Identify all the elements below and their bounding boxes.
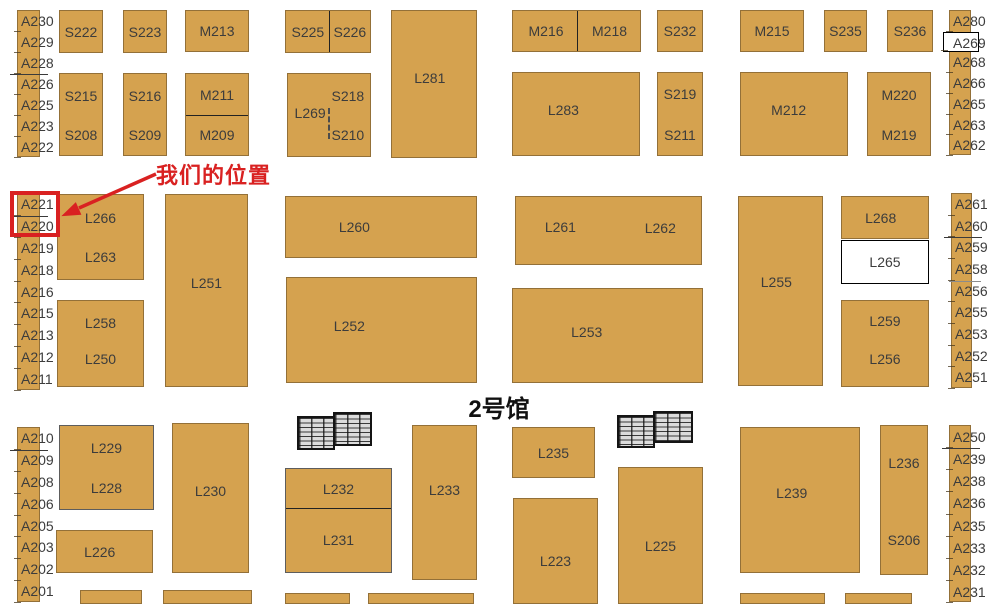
booth-label-row: A250 bbox=[949, 426, 989, 448]
booth-L233: L233 bbox=[412, 425, 477, 580]
booth-label: A205 bbox=[17, 518, 54, 534]
booth-label: L250 bbox=[85, 351, 116, 367]
booth-label-row: A253 bbox=[951, 324, 989, 346]
booth-label-row: A202 bbox=[17, 559, 61, 581]
booth-label: A236 bbox=[949, 495, 986, 511]
booth-M216-M218: M216M218 bbox=[512, 10, 641, 52]
booth-label: A251 bbox=[951, 369, 988, 385]
booth-label: A250 bbox=[949, 429, 986, 445]
booth-label-row: A218 bbox=[17, 260, 61, 282]
booth-L266-L263: L266L263 bbox=[57, 194, 144, 280]
booth-label-row: A256 bbox=[951, 281, 989, 303]
booth-label: L260 bbox=[339, 219, 370, 235]
booth-label: A211 bbox=[17, 371, 53, 387]
booth-L281: L281 bbox=[391, 10, 477, 158]
hatch-segment bbox=[617, 415, 655, 448]
booth-label-row: A208 bbox=[17, 472, 61, 494]
booth-label: L252 bbox=[334, 318, 365, 334]
booth-L253: L253 bbox=[512, 288, 703, 383]
booth-M212: M212 bbox=[740, 72, 848, 156]
booth-label: M219 bbox=[881, 127, 916, 143]
booth-L226: L226 bbox=[56, 530, 153, 573]
booth-label: S216 bbox=[129, 88, 162, 104]
booth-label: A268 bbox=[949, 54, 986, 70]
booth-label: A230 bbox=[17, 13, 54, 29]
booth-label: S211 bbox=[664, 127, 696, 143]
booth-label: A235 bbox=[949, 518, 986, 534]
our-location-label: 我们的位置 bbox=[156, 158, 271, 190]
booth-label: L232 bbox=[323, 481, 354, 497]
booth-label: M212 bbox=[771, 102, 806, 118]
exhibition-floorplan: A230A229A228A226A225A223A222A221A220A219… bbox=[0, 0, 989, 604]
booth-label: S210 bbox=[332, 127, 365, 143]
booth-label: S206 bbox=[888, 532, 921, 548]
booth-label: L262 bbox=[645, 220, 676, 236]
booth-label: S215 bbox=[65, 88, 98, 104]
booth-label: L269 bbox=[295, 105, 326, 121]
booth-label: A213 bbox=[17, 327, 54, 343]
booth-label: L235 bbox=[538, 445, 569, 461]
booth-label: A262 bbox=[949, 137, 986, 153]
booth-label: S232 bbox=[664, 23, 697, 39]
booth-label: S219 bbox=[664, 86, 697, 102]
booth-label: A261 bbox=[951, 196, 988, 212]
booth-label: S226 bbox=[333, 24, 366, 40]
booth-M213: M213 bbox=[185, 10, 249, 52]
booth-label-row: A206 bbox=[17, 494, 61, 516]
booth-stub bbox=[368, 593, 474, 604]
booth-divider bbox=[286, 508, 391, 509]
booth-label: L251 bbox=[191, 275, 222, 291]
booth-divider bbox=[186, 115, 248, 116]
booth-L265: L265 bbox=[841, 240, 929, 284]
booth-label-row: A232 bbox=[949, 559, 989, 581]
booth-label: A203 bbox=[17, 539, 54, 555]
booth-label-row: A215 bbox=[17, 303, 61, 325]
booth-label: M220 bbox=[881, 87, 916, 103]
booth-label: L236 bbox=[888, 455, 919, 471]
booth-L258-L250: L258L250 bbox=[57, 300, 144, 387]
booth-label-row: A212 bbox=[17, 347, 61, 369]
booth-label-row: A216 bbox=[17, 282, 61, 304]
booth-label-row: A255 bbox=[951, 302, 989, 324]
booth-L283: L283 bbox=[512, 72, 640, 156]
booth-label: A226 bbox=[17, 76, 54, 92]
booth-label-row: A233 bbox=[949, 537, 989, 559]
booth-label: S236 bbox=[894, 23, 927, 39]
booth-label: L263 bbox=[85, 249, 116, 265]
booth-label-row: A225 bbox=[17, 95, 61, 116]
booth-label: A259 bbox=[951, 239, 988, 255]
booth-label: A266 bbox=[949, 75, 986, 91]
booth-label-row: A236 bbox=[949, 492, 989, 514]
booth-S216-S209: S216S209 bbox=[123, 73, 167, 156]
hatch-segment bbox=[333, 412, 372, 446]
booth-column-right-bottom: A250A239A238A236A235A233A232A231 bbox=[949, 425, 971, 602]
booth-label: A225 bbox=[17, 97, 54, 113]
booth-label: A263 bbox=[949, 117, 986, 133]
booth-S219-S211: S219S211 bbox=[657, 72, 703, 156]
booth-column-right-top: A280A269A268A266A265A263A262 bbox=[949, 10, 971, 155]
booth-column-left-bottom: A210A209A208A206A205A203A202A201 bbox=[17, 427, 40, 602]
booth-label-row: A219 bbox=[17, 238, 61, 260]
booth-label-row: A231 bbox=[949, 581, 989, 603]
booth-label: M215 bbox=[754, 23, 789, 39]
booth-label: L253 bbox=[571, 324, 602, 340]
booth-label: A212 bbox=[17, 349, 54, 365]
booth-label: A232 bbox=[949, 562, 986, 578]
booth-S222: S222 bbox=[59, 10, 103, 53]
booth-M215: M215 bbox=[740, 10, 804, 52]
booth-label: L230 bbox=[195, 483, 226, 499]
booth-L229-L228: L229L228 bbox=[59, 425, 154, 510]
booth-label: L261 bbox=[545, 219, 576, 235]
booth-label-row: A201 bbox=[17, 581, 61, 603]
booth-label: L266 bbox=[85, 210, 116, 226]
booth-label: A256 bbox=[951, 283, 988, 299]
booth-label-row: A226 bbox=[17, 74, 61, 95]
booth-label: S225 bbox=[291, 24, 324, 40]
booth-label-row: A230 bbox=[17, 11, 61, 32]
booth-label: S208 bbox=[65, 127, 98, 143]
booth-label-row: A211 bbox=[17, 369, 61, 391]
booth-L260: L260 bbox=[285, 196, 477, 258]
booth-S236: S236 bbox=[887, 10, 933, 52]
booth-L225: L225 bbox=[618, 467, 703, 604]
booth-label: A231 bbox=[949, 584, 986, 600]
booth-M220-M219: M220M219 bbox=[867, 72, 931, 156]
booth-label: A238 bbox=[949, 473, 986, 489]
booth-label: S222 bbox=[65, 24, 98, 40]
booth-label: A208 bbox=[17, 474, 54, 490]
booth-label: A265 bbox=[949, 96, 986, 112]
booth-label: S209 bbox=[129, 127, 162, 143]
booth-label-row: A205 bbox=[17, 516, 61, 538]
booth-label-row: A223 bbox=[17, 116, 61, 137]
booth-label: M209 bbox=[199, 127, 234, 143]
booth-L236-S206: L236S206 bbox=[880, 425, 928, 575]
booth-label: L239 bbox=[776, 485, 807, 501]
booth-label: A280 bbox=[949, 13, 986, 29]
booth-stub bbox=[845, 593, 912, 604]
booth-label-row: A260 bbox=[951, 216, 989, 238]
booth-label: A218 bbox=[17, 262, 54, 278]
booth-L223: L223 bbox=[513, 498, 598, 604]
booth-label-row: A203 bbox=[17, 537, 61, 559]
booth-stub bbox=[80, 590, 142, 604]
booth-label-row: A239 bbox=[949, 448, 989, 470]
booth-label-row: A263 bbox=[949, 115, 989, 136]
booth-column-left-top: A230A229A228A226A225A223A222 bbox=[17, 10, 40, 157]
booth-L269-S218-S210: L269S218S210 bbox=[287, 73, 371, 157]
booth-column-right-mid: A261A260A259A258A256A255A253A252A251 bbox=[951, 193, 972, 388]
booth-label: A216 bbox=[17, 284, 54, 300]
booth-S215-S208: S215S208 bbox=[59, 73, 103, 156]
booth-label-row: A213 bbox=[17, 325, 61, 347]
booth-label-row: A265 bbox=[949, 94, 989, 115]
booth-stub bbox=[740, 593, 825, 604]
booth-label: A239 bbox=[949, 451, 986, 467]
booth-L252: L252 bbox=[286, 277, 477, 383]
location-highlight-box bbox=[10, 191, 60, 237]
booth-label: L228 bbox=[91, 480, 122, 496]
booth-label: A252 bbox=[951, 348, 988, 364]
booth-L268: L268 bbox=[841, 196, 929, 239]
booth-label: A253 bbox=[951, 326, 988, 342]
booth-label: L231 bbox=[323, 532, 354, 548]
booth-label-row: A259 bbox=[951, 237, 989, 259]
booth-label: L281 bbox=[414, 70, 445, 86]
booth-L255: L255 bbox=[738, 196, 823, 386]
hatch-segment bbox=[297, 416, 335, 450]
booth-S225-S226: S225S226 bbox=[285, 10, 371, 53]
booth-label: L255 bbox=[761, 274, 792, 290]
booth-label-row: A209 bbox=[17, 450, 61, 472]
booth-L239: L239 bbox=[740, 427, 860, 573]
booth-label-row: A228 bbox=[17, 53, 61, 74]
booth-L251: L251 bbox=[165, 194, 248, 387]
booth-label: L229 bbox=[91, 440, 122, 456]
booth-label: A202 bbox=[17, 561, 54, 577]
booth-label: L265 bbox=[869, 254, 900, 270]
booth-L259-L256: L259L256 bbox=[841, 300, 929, 387]
booth-M211-M209: M211M209 bbox=[185, 73, 249, 156]
booth-label: S223 bbox=[129, 24, 162, 40]
booth-label-row: A238 bbox=[949, 470, 989, 492]
booth-label: S218 bbox=[332, 88, 365, 104]
booth-S223: S223 bbox=[123, 10, 167, 53]
booth-label: A206 bbox=[17, 496, 54, 512]
booth-divider bbox=[329, 11, 330, 52]
booth-L235: L235 bbox=[512, 427, 595, 478]
booth-label: A219 bbox=[17, 240, 54, 256]
booth-label: L283 bbox=[548, 102, 579, 118]
booth-label-row: A258 bbox=[951, 259, 989, 281]
booth-label: L226 bbox=[84, 544, 115, 560]
booth-label: A229 bbox=[17, 34, 54, 50]
booth-L230: L230 bbox=[172, 423, 249, 573]
booth-stub bbox=[285, 593, 350, 604]
booth-label: A255 bbox=[951, 304, 988, 320]
booth-label: A260 bbox=[951, 218, 988, 234]
booth-label: A233 bbox=[949, 540, 986, 556]
booth-S232: S232 bbox=[657, 10, 703, 52]
booth-label: M216 bbox=[529, 23, 564, 39]
booth-L261-L262: L261L262 bbox=[515, 196, 702, 265]
booth-label: S235 bbox=[829, 23, 862, 39]
booth-label: L223 bbox=[540, 553, 571, 569]
hatch-segment bbox=[653, 411, 693, 443]
hall-title: 2号馆 bbox=[439, 389, 559, 424]
booth-L232-L231: L232L231 bbox=[285, 468, 392, 573]
booth-label: A269 bbox=[944, 35, 986, 51]
booth-label-row: A261 bbox=[951, 194, 989, 216]
booth-label: L256 bbox=[869, 351, 900, 367]
booth-label: A228 bbox=[17, 55, 54, 71]
booth-label-row: A262 bbox=[949, 135, 989, 156]
booth-label: M218 bbox=[592, 23, 627, 39]
booth-label: A258 bbox=[951, 261, 988, 277]
booth-label-row: A269 bbox=[943, 32, 979, 53]
booth-label: A223 bbox=[17, 118, 54, 134]
booth-label: M211 bbox=[200, 87, 234, 103]
booth-label-row: A252 bbox=[951, 346, 989, 368]
booth-label: A201 bbox=[17, 583, 54, 599]
booth-S235: S235 bbox=[824, 10, 867, 52]
booth-label-row: A235 bbox=[949, 515, 989, 537]
booth-label: A210 bbox=[17, 430, 54, 446]
dashed-divider bbox=[328, 108, 330, 138]
booth-label-row: A266 bbox=[949, 73, 989, 94]
booth-label-row: A280 bbox=[949, 11, 989, 32]
booth-label: L268 bbox=[865, 210, 896, 226]
booth-label: L259 bbox=[869, 313, 900, 329]
booth-label: L233 bbox=[429, 482, 460, 498]
booth-label: L225 bbox=[645, 538, 676, 554]
booth-label-row: A229 bbox=[17, 32, 61, 53]
booth-label-row: A268 bbox=[949, 52, 989, 73]
booth-label: M213 bbox=[199, 23, 234, 39]
booth-label: A222 bbox=[17, 139, 54, 155]
booth-label-row: A251 bbox=[951, 367, 989, 389]
booth-label-row: A210 bbox=[17, 428, 61, 450]
booth-label: A215 bbox=[17, 305, 54, 321]
booth-divider bbox=[577, 11, 578, 51]
booth-label: L258 bbox=[85, 315, 116, 331]
booth-stub bbox=[163, 590, 252, 604]
booth-label-row: A222 bbox=[17, 137, 61, 158]
booth-label: A209 bbox=[17, 452, 54, 468]
